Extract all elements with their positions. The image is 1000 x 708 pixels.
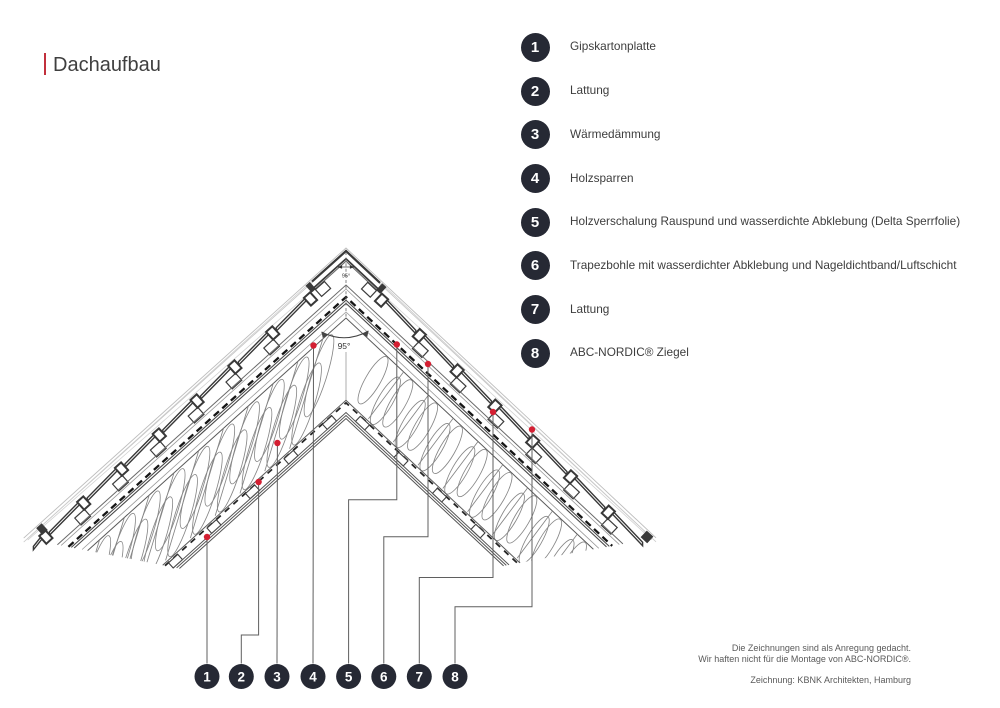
svg-text:95°: 95° [342,274,350,280]
svg-text:7: 7 [416,669,424,684]
svg-text:95°: 95° [338,341,351,351]
svg-text:4: 4 [309,669,317,684]
svg-text:5: 5 [345,669,353,684]
svg-text:8: 8 [451,669,459,684]
svg-text:1: 1 [203,669,211,684]
svg-text:6: 6 [380,669,388,684]
svg-text:3: 3 [273,669,281,684]
svg-text:2: 2 [238,669,246,684]
